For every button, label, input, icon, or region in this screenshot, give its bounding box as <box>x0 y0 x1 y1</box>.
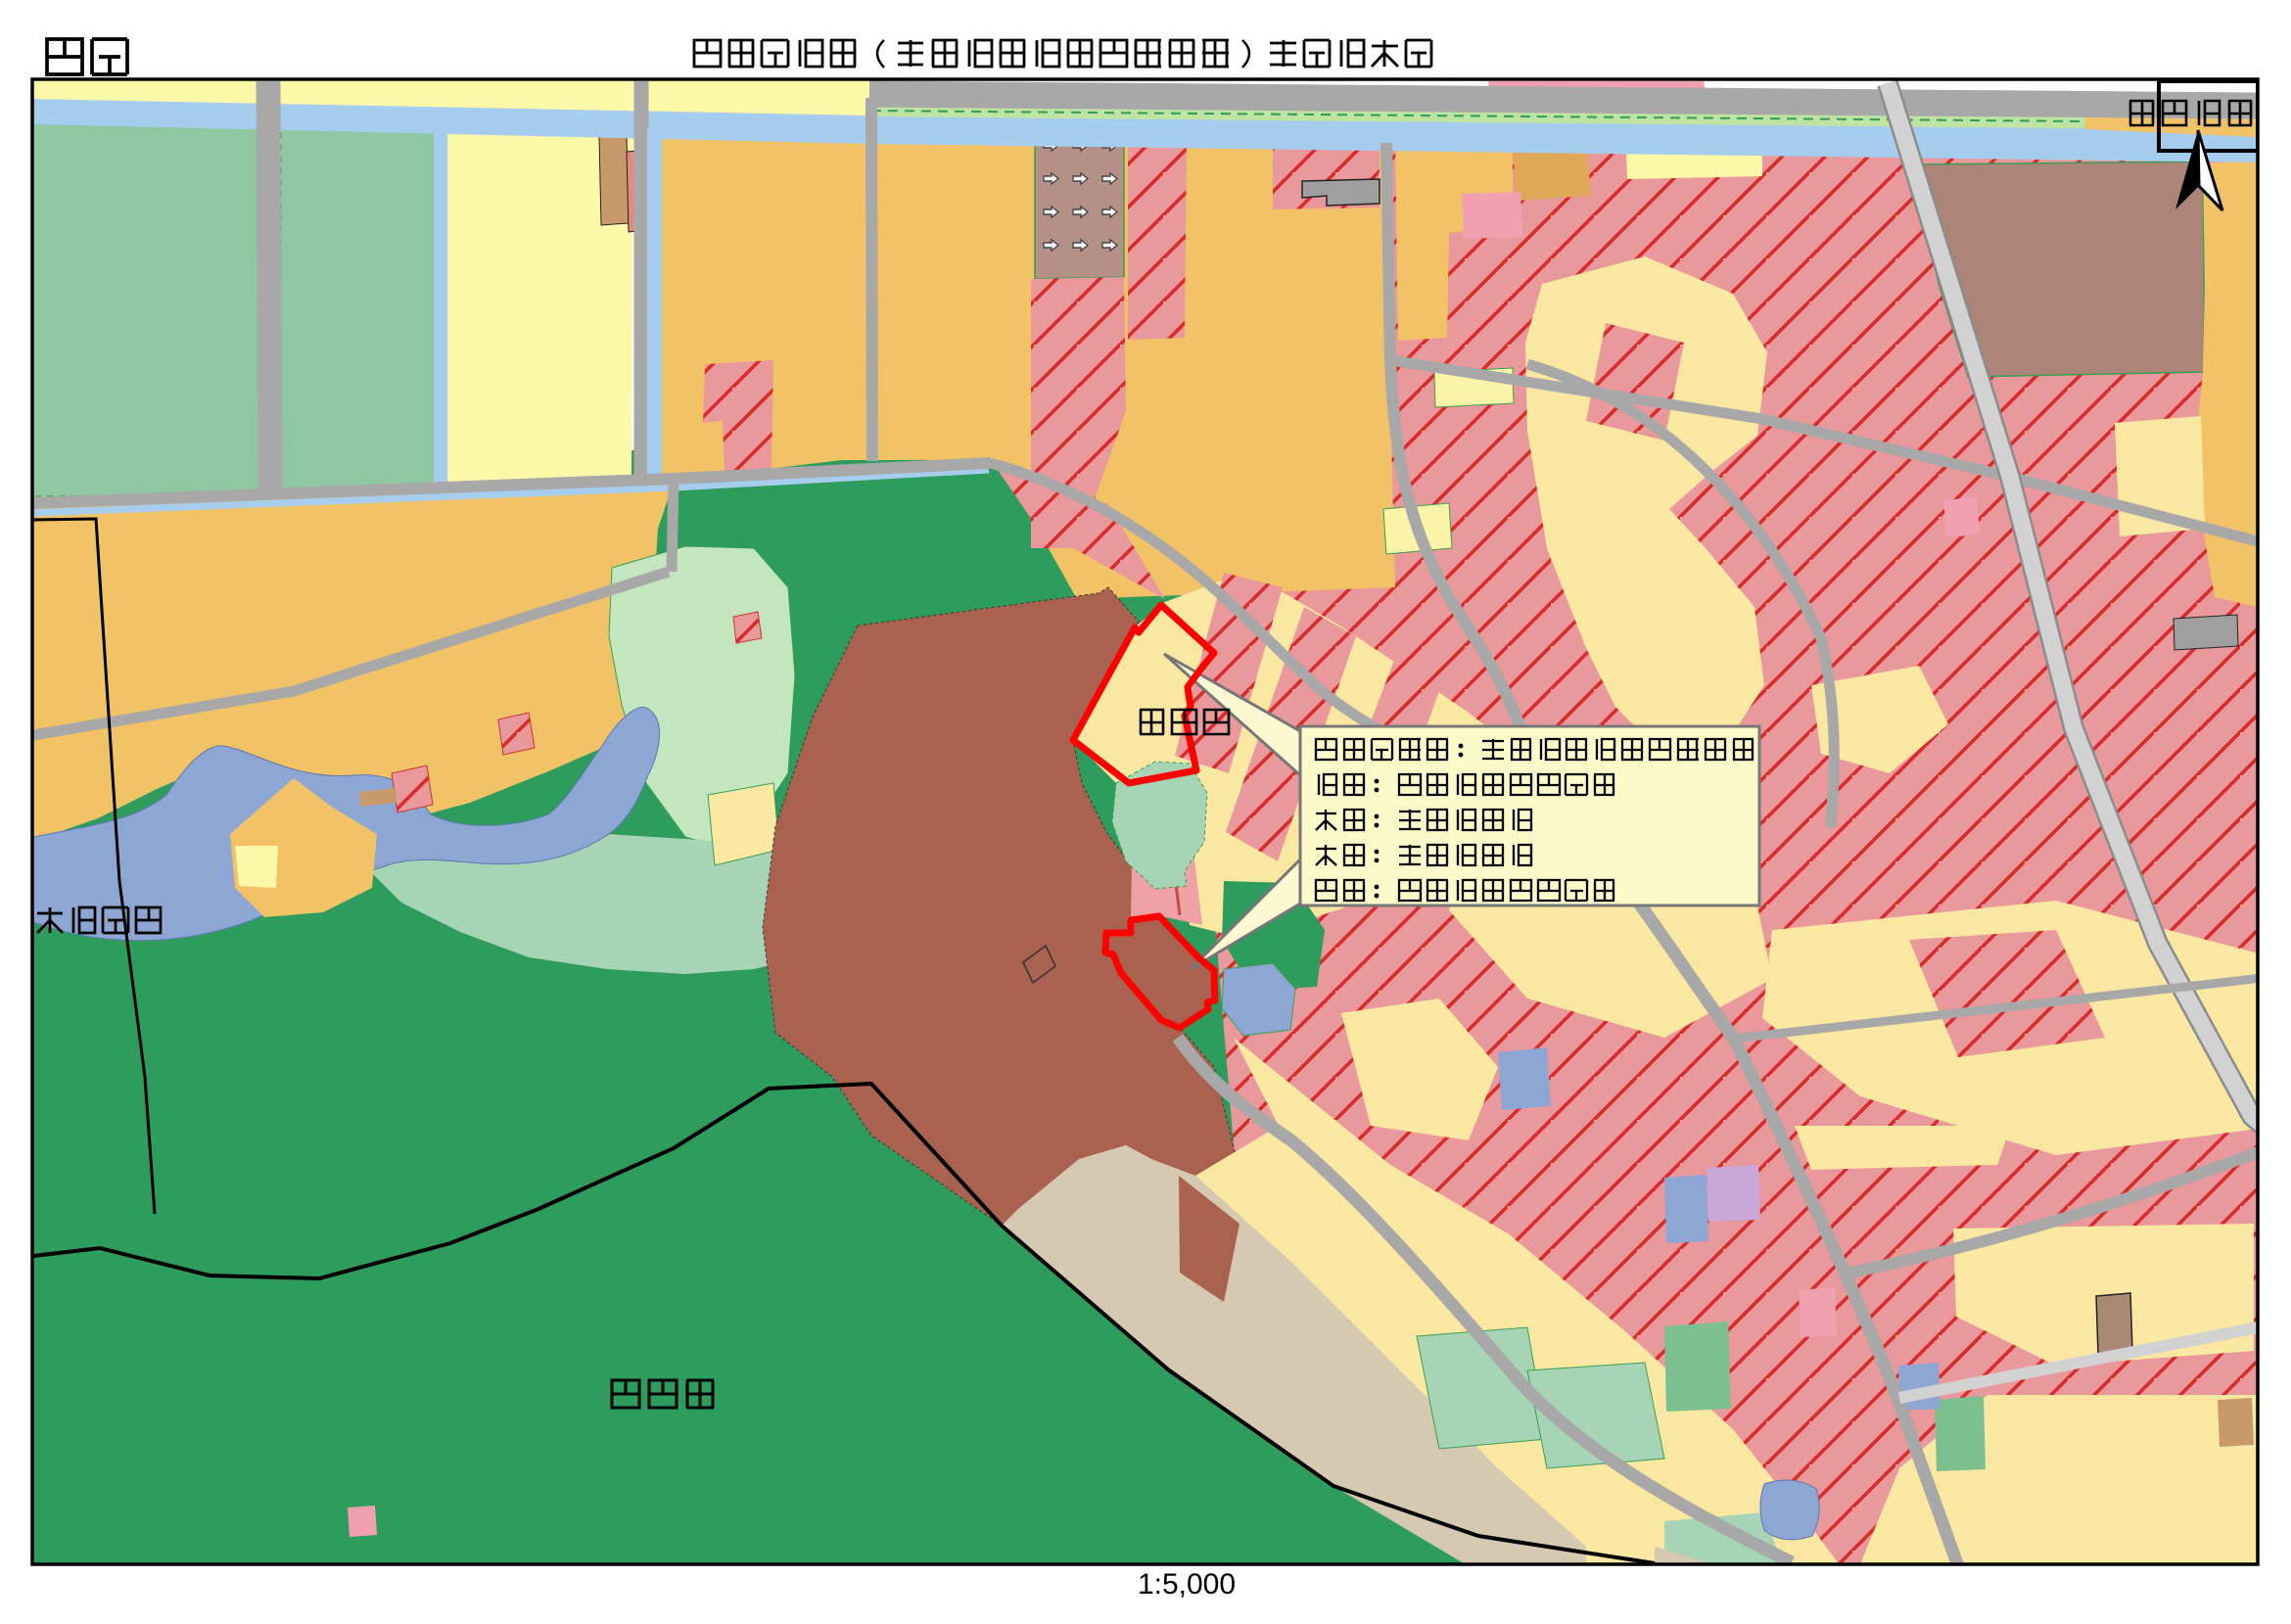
svg-text:1:5,000: 1:5,000 <box>1138 1568 1236 1601</box>
